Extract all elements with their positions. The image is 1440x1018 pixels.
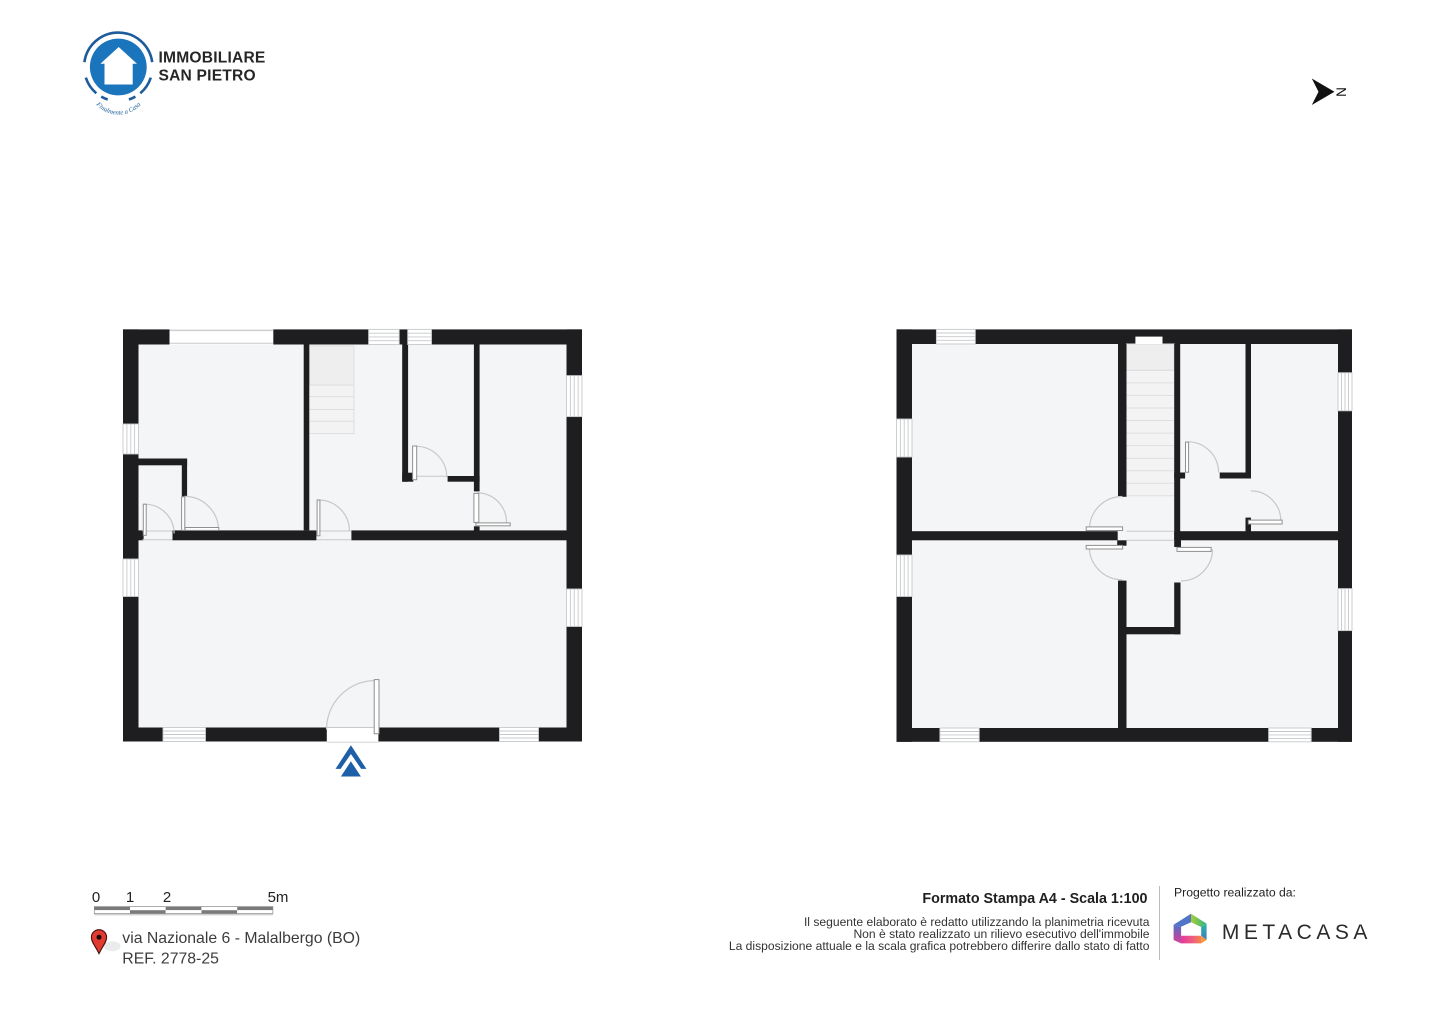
svg-text:via Nazionale 6 - Malalbergo (: via Nazionale 6 - Malalbergo (BO): [122, 930, 360, 947]
svg-text:METACASA: METACASA: [1222, 921, 1372, 944]
svg-text:5m: 5m: [268, 889, 289, 906]
svg-text:N: N: [1334, 87, 1349, 97]
svg-text:SAN PIETRO: SAN PIETRO: [159, 68, 256, 85]
svg-text:2: 2: [163, 889, 171, 906]
svg-text:IMMOBILIARE: IMMOBILIARE: [159, 50, 266, 67]
svg-text:Progetto realizzato da:: Progetto realizzato da:: [1174, 886, 1296, 900]
svg-text:Finalmente a Casa: Finalmente a Casa: [94, 100, 143, 116]
svg-text:0: 0: [92, 889, 100, 906]
svg-text:REF. 2778-25: REF. 2778-25: [122, 951, 219, 968]
svg-text:Formato Stampa A4 - Scala 1:10: Formato Stampa A4 - Scala 1:100: [922, 891, 1147, 907]
svg-text:1: 1: [126, 889, 134, 906]
svg-text:La disposizione attuale e la s: La disposizione attuale e la scala grafi…: [729, 939, 1150, 953]
